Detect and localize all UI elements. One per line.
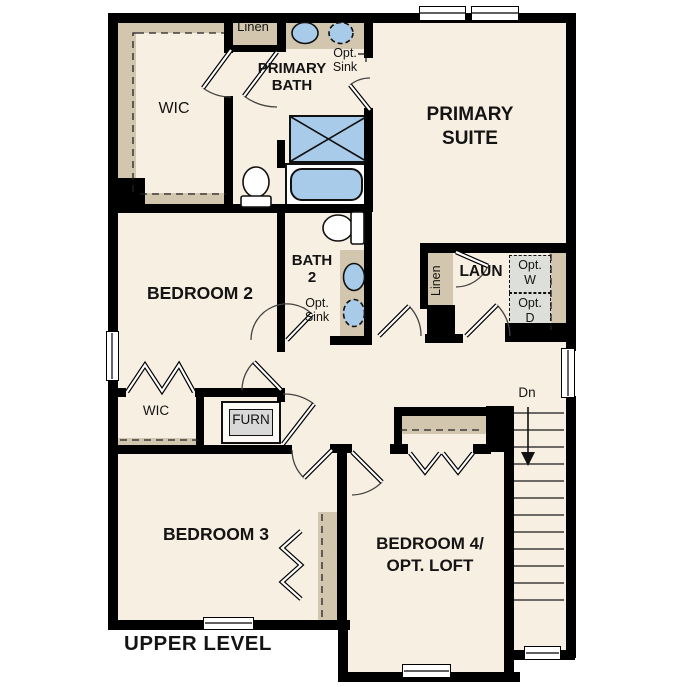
- wall: [277, 13, 286, 52]
- label-opt-sink-primary: Opt. Sink: [324, 46, 366, 76]
- wall: [394, 407, 402, 445]
- room-label-bedroom2: BEDROOM 2: [118, 284, 282, 306]
- floor-stairs: [507, 445, 567, 653]
- window-stair-landing: [561, 348, 575, 398]
- wall: [228, 45, 280, 52]
- room-label-laundry: LAUN: [455, 263, 507, 283]
- wall: [277, 388, 285, 402]
- window-stairs-bottom: [524, 646, 561, 660]
- bedroom4-closet-shelf: [398, 414, 486, 434]
- wall: [364, 108, 373, 212]
- wall: [195, 388, 285, 397]
- wall: [396, 407, 514, 416]
- wall: [108, 204, 372, 213]
- label-opt-washer: Opt. W: [509, 258, 551, 292]
- floor-plan: WIC Linen PRIMARY BATH Opt. Sink PRIMARY…: [0, 0, 687, 687]
- room-label-bedroom3: BEDROOM 3: [134, 525, 298, 547]
- wall: [566, 396, 576, 658]
- wall: [364, 212, 372, 344]
- chase-block: [115, 178, 145, 209]
- wall: [108, 13, 118, 335]
- shower: [289, 115, 368, 163]
- wall: [420, 243, 567, 253]
- wall: [473, 444, 491, 454]
- label-opt-dryer: Opt. D: [509, 296, 551, 330]
- closet-label-linen-upper: Linen: [228, 20, 278, 38]
- label-stairs-down: Dn: [512, 385, 542, 403]
- wall: [277, 212, 285, 352]
- window-primary-suite-1: [419, 6, 466, 21]
- room-label-wic-upper: WIC: [142, 100, 206, 120]
- room-label-bedroom4: BEDROOM 4/ OPT. LOFT: [350, 533, 510, 579]
- closet-label-linen-laundry: Linen: [429, 253, 453, 308]
- wall: [425, 334, 463, 343]
- wall: [224, 96, 233, 212]
- window-bedroom4: [402, 664, 451, 678]
- level-title: UPPER LEVEL: [108, 633, 288, 659]
- wall: [108, 388, 126, 397]
- wall: [390, 444, 408, 454]
- wall: [108, 445, 292, 454]
- window-bedroom3: [203, 617, 254, 630]
- room-label-primary-suite: PRIMARY SUITE: [393, 103, 547, 155]
- window-primary-suite-2: [471, 6, 519, 21]
- wall: [566, 13, 576, 351]
- tub: [290, 168, 363, 201]
- room-label-wic-bedroom2: WIC: [134, 403, 178, 421]
- wall: [330, 336, 372, 345]
- label-opt-sink-bath2: Opt. Sink: [294, 296, 340, 326]
- laundry-counter: [549, 252, 567, 332]
- wall: [108, 378, 118, 630]
- window-bedroom2: [106, 331, 119, 381]
- room-label-bath2: BATH 2: [290, 252, 334, 290]
- label-furnace: FURN: [222, 412, 280, 432]
- wall: [277, 140, 285, 168]
- wall: [196, 388, 204, 448]
- wall: [337, 446, 347, 622]
- wall: [420, 243, 428, 309]
- wic-shelf-left: [117, 17, 136, 195]
- wall: [427, 305, 455, 337]
